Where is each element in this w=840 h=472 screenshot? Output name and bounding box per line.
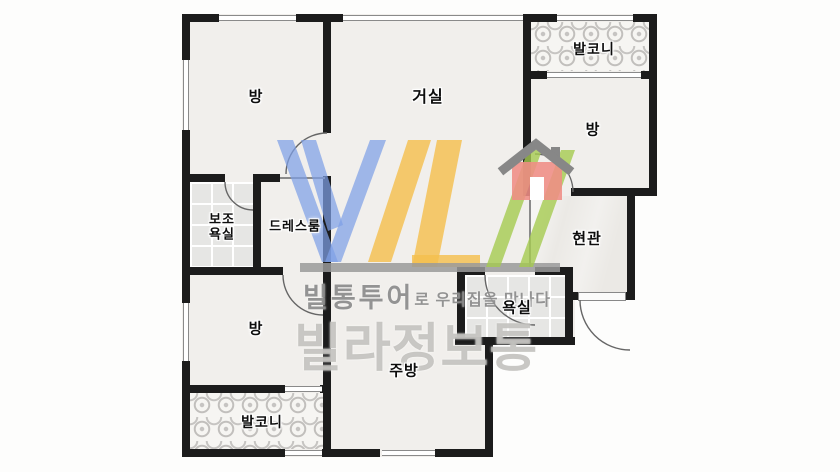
room-label-bathroom: 욕실	[502, 301, 532, 318]
wall-segment	[457, 267, 465, 345]
window	[183, 303, 189, 361]
wall-segment	[182, 130, 190, 303]
wall-segment	[296, 14, 343, 22]
window	[285, 450, 322, 456]
wall-segment	[323, 176, 331, 457]
window	[285, 386, 322, 392]
room-label-bedroom-right: 방	[586, 123, 601, 140]
room-label-balcony-bottom: 발코니	[241, 415, 283, 431]
room-label-entrance: 현관	[572, 232, 602, 249]
wall-segment	[323, 14, 331, 133]
wall-segment	[182, 14, 190, 60]
room-label-kitchen: 주방	[389, 364, 419, 381]
window	[183, 60, 189, 130]
wall-segment	[641, 71, 657, 79]
aux-bathroom-label-line2: 욕실	[209, 226, 235, 241]
entrance-threshold-line	[529, 196, 531, 267]
wall-segment	[649, 14, 657, 196]
room-label-dressroom: 드레스룸	[269, 220, 321, 235]
aux-bathroom-label-line1: 보조	[209, 211, 235, 226]
wall-segment	[182, 174, 225, 182]
wall-segment	[565, 267, 573, 345]
wall-segment	[626, 292, 635, 300]
room-label-aux-bathroom: 보조 욕실	[209, 212, 235, 241]
wall-segment	[485, 345, 493, 457]
window	[547, 72, 641, 78]
floor-plan-canvas: 빌통투어로 우리집을 만나다 빌라정보통 방 거실 발코니 방 보조 욕실 드레…	[0, 0, 840, 472]
wall-segment	[322, 449, 380, 457]
wall-segment	[627, 188, 635, 300]
window	[382, 450, 435, 456]
wall-segment	[182, 361, 190, 457]
wall-segment	[571, 188, 657, 196]
door-arc-front-door	[580, 300, 630, 350]
wall-segment	[182, 267, 283, 275]
window	[219, 15, 296, 21]
wall-segment	[182, 385, 285, 393]
room-label-balcony-top: 발코니	[573, 42, 615, 58]
wall-segment	[253, 174, 261, 275]
room-label-bedroom-top-left: 방	[249, 90, 264, 107]
room-label-bedroom-bottom-left: 방	[249, 322, 264, 339]
wall-segment	[435, 449, 493, 457]
wall-segment	[523, 14, 531, 196]
wall-segment	[523, 188, 535, 196]
dressroom-opening-line	[280, 177, 325, 179]
front-door-panel	[578, 292, 626, 301]
wall-segment	[455, 337, 575, 345]
wall-segment	[182, 449, 285, 457]
room-label-living-room: 거실	[412, 89, 443, 107]
window	[557, 15, 633, 21]
window	[343, 15, 523, 21]
